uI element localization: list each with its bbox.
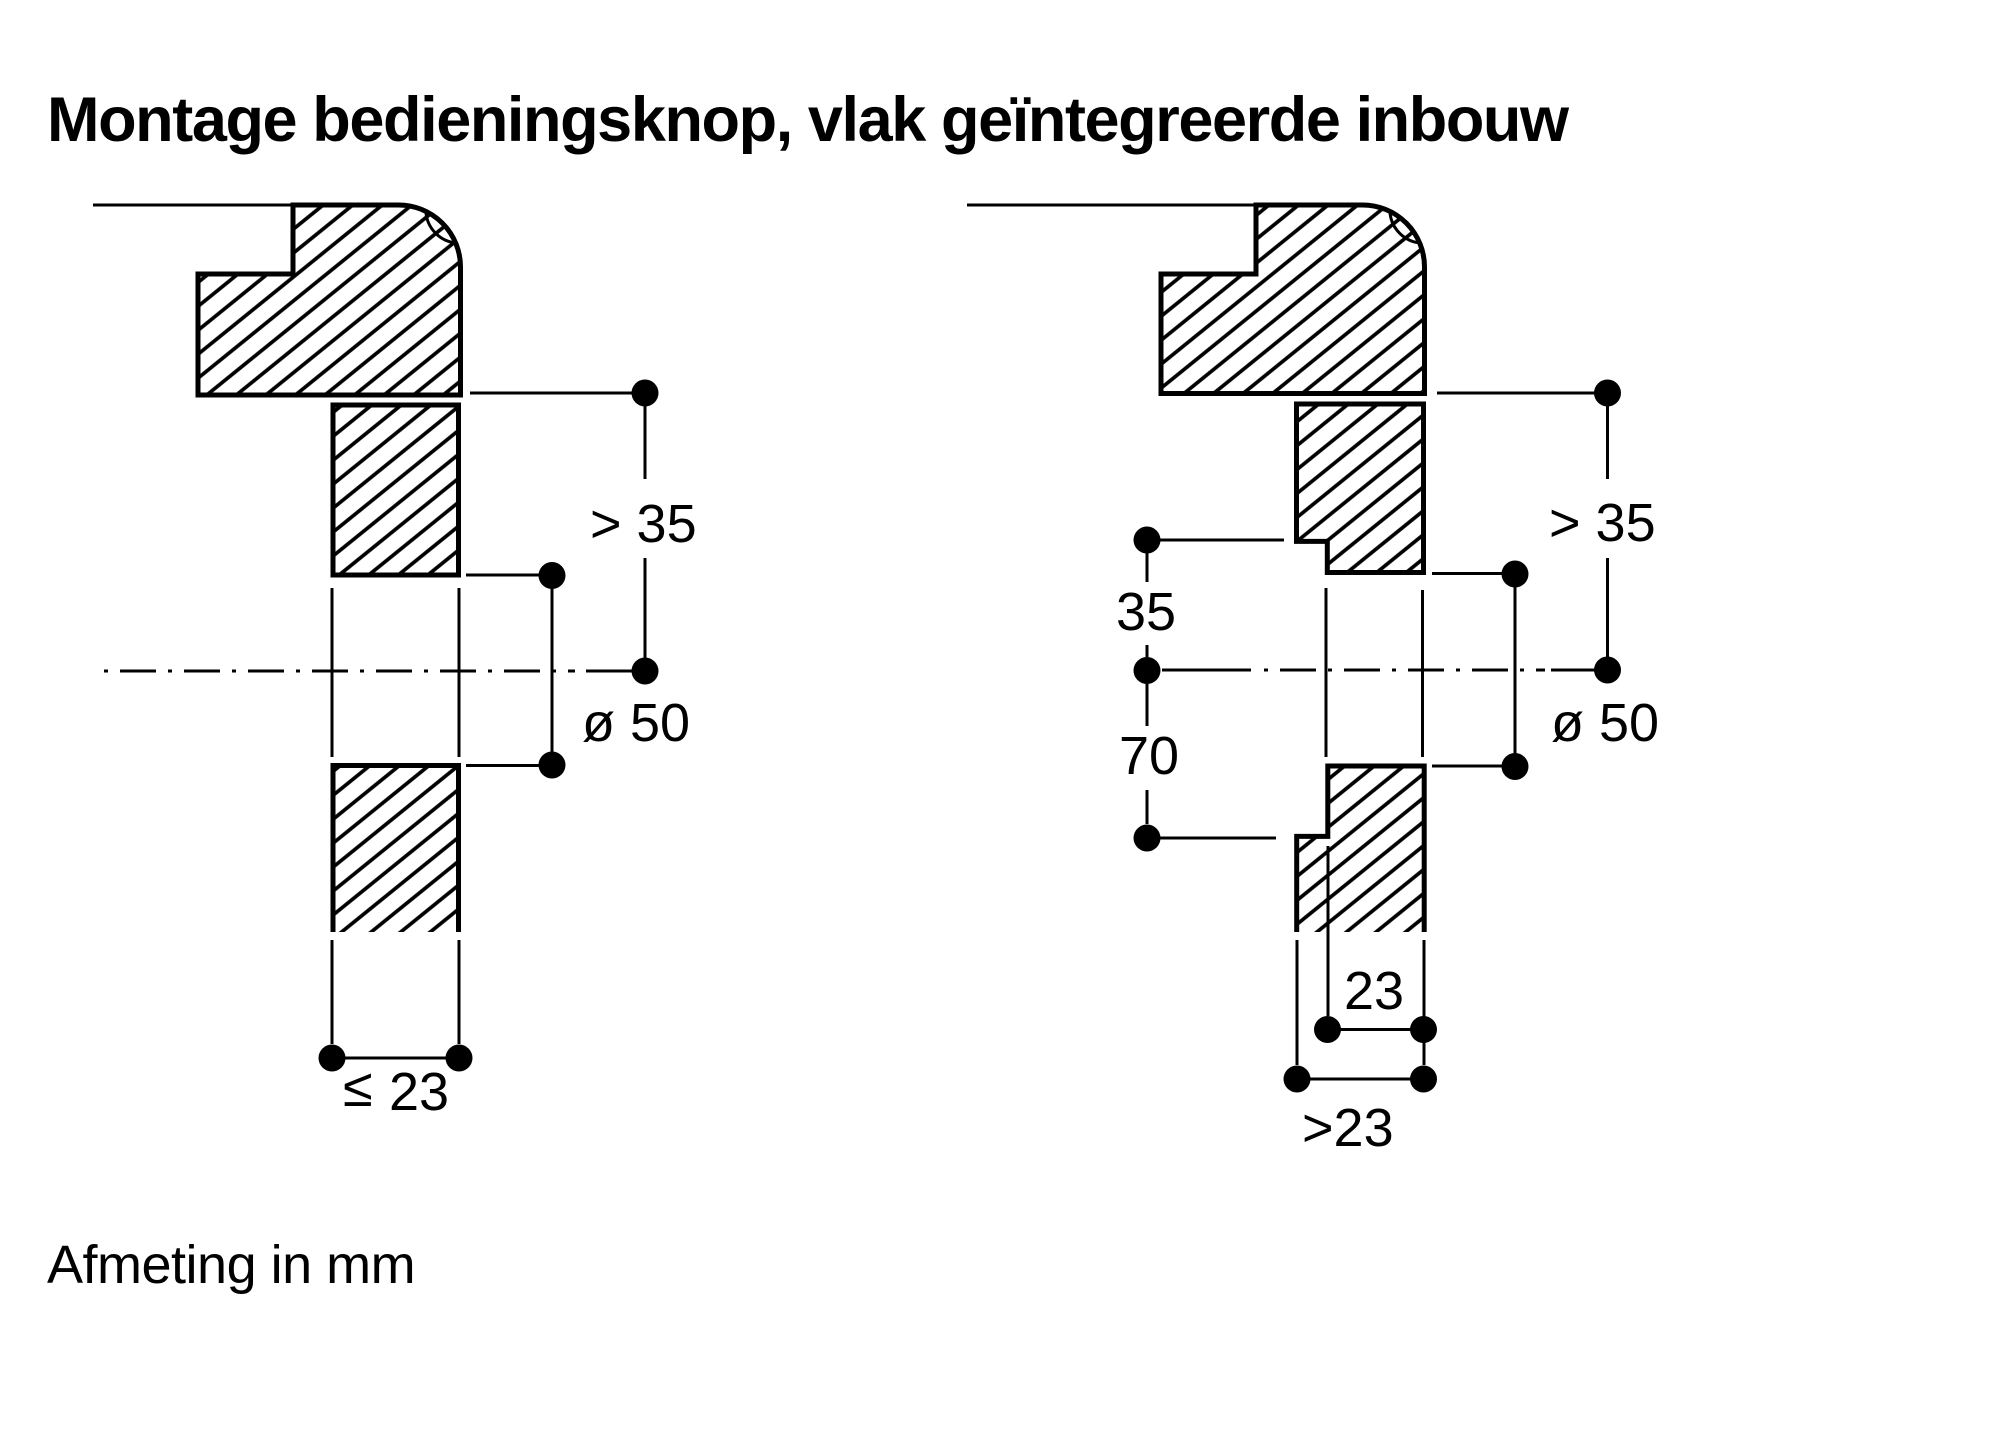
svg-text:35: 35: [1116, 582, 1176, 642]
svg-text:Afmeting in mm: Afmeting in mm: [47, 1235, 415, 1295]
svg-text:70: 70: [1119, 726, 1179, 786]
svg-text:≤: ≤: [343, 1058, 373, 1118]
svg-text:> 35: > 35: [590, 494, 697, 554]
svg-text:ø 50: ø 50: [582, 693, 690, 753]
svg-text:ø 50: ø 50: [1551, 693, 1659, 753]
svg-text:>23: >23: [1302, 1098, 1394, 1158]
svg-text:23: 23: [389, 1062, 449, 1122]
svg-text:> 35: > 35: [1549, 493, 1656, 553]
svg-text:Montage bedieningsknop, vlak g: Montage bedieningsknop, vlak geïntegreer…: [47, 85, 1570, 155]
svg-text:23: 23: [1344, 961, 1404, 1021]
